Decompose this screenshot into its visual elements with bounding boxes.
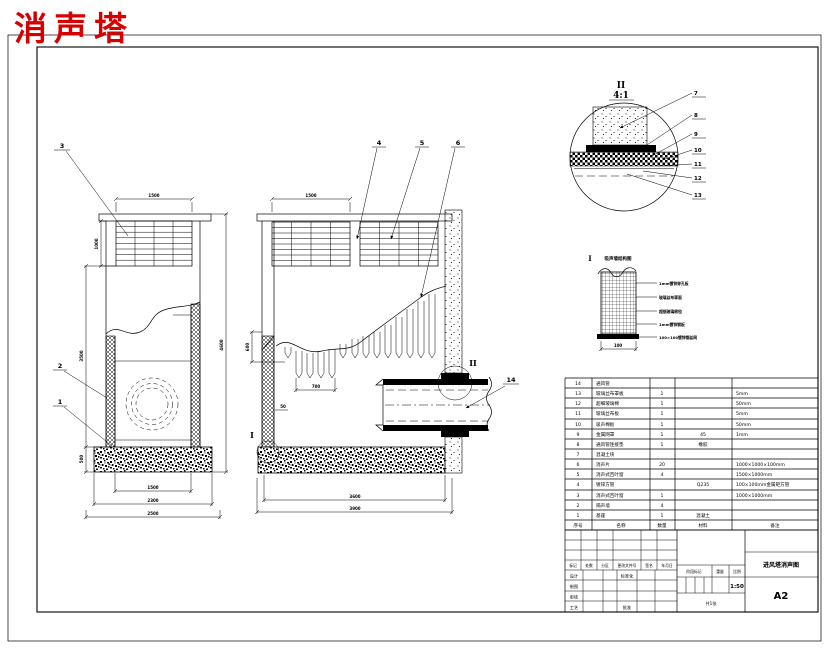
- dim-wedge-span: 700: [312, 384, 321, 389]
- bom-cell: 通风管: [596, 380, 610, 387]
- bom-cell: 6: [577, 462, 580, 468]
- tb-cell: 批准: [623, 604, 631, 611]
- callout-5: 5: [420, 139, 425, 147]
- bom-cell: 金属网罩: [596, 431, 615, 438]
- bom-table: 14通风管 13玻璃丝布罩板15mm 12超细玻璃棉150mm 11玻璃丝布板1…: [565, 378, 818, 530]
- dim-front-base-height: 500: [79, 455, 84, 464]
- drawing-name: 进风塔消声图: [763, 561, 799, 569]
- detail-i-width-dim: 100: [614, 343, 623, 348]
- dim-front-grille-height: 1000: [94, 238, 99, 249]
- packing-band: [570, 152, 678, 166]
- tb-cell: 年月日: [661, 563, 673, 568]
- bom-cell: 玻璃丝布罩板: [596, 390, 624, 397]
- detail-ii: II 4:1 7 8 9 10 11 12 13: [570, 81, 706, 211]
- bom-cell: 1: [661, 493, 664, 499]
- bom-cell: 超细玻璃棉: [596, 400, 619, 407]
- bom-cell: 1: [661, 391, 664, 397]
- callout-3: 3: [60, 142, 65, 150]
- detail-marker-i: I: [250, 430, 254, 440]
- tb-cell: 分区: [601, 563, 609, 568]
- bom-cell: 4: [661, 472, 664, 478]
- front-cap-plate: [99, 214, 211, 221]
- bom-cell: 1: [661, 422, 664, 428]
- bom-cell: 3: [577, 493, 580, 499]
- right-wall-lower: [445, 437, 462, 473]
- cad-drawing-canvas: 消声塔 1500 1000: [0, 0, 830, 654]
- front-grille: [116, 221, 192, 266]
- detail-ii-scale: 4:1: [613, 91, 629, 101]
- tb-cell: 工艺: [570, 605, 578, 610]
- bom-cell: 混凝土: [696, 512, 710, 519]
- bom-cell: 隔声墙: [596, 502, 610, 509]
- bom-cell: 8: [577, 442, 580, 448]
- callout-4: 4: [377, 139, 382, 147]
- detail-callout-13: 13: [694, 193, 702, 199]
- bom-cell: 9: [577, 432, 580, 438]
- dim-panel-width: 1500: [305, 193, 316, 198]
- front-view: 1500 1000 3500 500 4600 1500 2300 2500 3…: [53, 142, 228, 519]
- wall-hatch-left: [106, 336, 115, 447]
- tb-cell: 阶段标记: [686, 569, 701, 574]
- bom-cell: 橡胶: [698, 441, 708, 448]
- detail-callout-8: 8: [694, 113, 698, 119]
- bom-cell: 14: [575, 381, 581, 387]
- detail-i-title: 吸声墙结构图: [605, 255, 632, 262]
- bom-cell: 45: [700, 432, 706, 438]
- bom-cell: 2: [577, 503, 580, 509]
- bom-cell: 通风管连接垫: [596, 441, 624, 448]
- layer-label-2: 玻璃丝布罩面: [659, 295, 682, 300]
- detail-i: I 吸声墙结构图 100 1mm镀锌穿孔板 玻璃丝布罩面 超细玻璃棉毡 1mm镀…: [588, 254, 697, 351]
- bom-cell: 1: [577, 513, 580, 519]
- mesh-panel: [601, 272, 636, 334]
- detail-callout-12: 12: [694, 176, 702, 182]
- right-wall-upper: [445, 210, 462, 373]
- bom-rows: 14通风管 13玻璃丝布罩板15mm 12超细玻璃棉150mm 11玻璃丝布板1…: [575, 380, 790, 519]
- bom-cell: 镀锌方管: [596, 481, 615, 488]
- bom-header: 序号 名称 数量 材料 备注: [573, 522, 780, 529]
- detail-marker-ii: II: [469, 358, 477, 368]
- callout-6: 6: [456, 139, 461, 147]
- bom-cell: 1: [661, 411, 664, 417]
- bom-cell: 13: [575, 391, 581, 397]
- bom-cell: 4: [661, 503, 664, 509]
- duct-opening: [126, 378, 178, 430]
- tb-cell: 处数: [585, 563, 593, 568]
- paper-size: A2: [774, 591, 789, 602]
- bom-header-cell: 备注: [770, 522, 780, 529]
- dim-front-height-right: 4600: [219, 339, 224, 350]
- callout-1: 1: [58, 398, 63, 406]
- bom-header-cell: 序号: [573, 522, 583, 529]
- sheet-note: 共1张: [705, 600, 717, 607]
- section-wall-hatch: [262, 336, 274, 447]
- bom-cell: 50mm: [736, 401, 751, 407]
- bom-cell: 1000×1000mm: [736, 493, 773, 499]
- bom-cell: 消声式百叶窗: [596, 471, 624, 478]
- bom-cell: 1500×1000mm: [736, 472, 773, 478]
- concrete-block: [593, 107, 647, 145]
- dim-front-width-outer: 2500: [147, 511, 158, 516]
- louvre-panel-2: [360, 222, 438, 266]
- bom-cell: 基座: [596, 512, 606, 519]
- tb-cell: 标准化: [621, 573, 634, 580]
- bom-cell: 1: [661, 432, 664, 438]
- base-strip: [597, 334, 639, 339]
- detail-callout-10: 10: [694, 148, 702, 154]
- front-foundation: [94, 447, 212, 472]
- layer-label-3: 超细玻璃棉毡: [658, 309, 682, 314]
- bom-cell: 混凝土块: [596, 451, 615, 458]
- bom-cell: 4: [577, 482, 580, 488]
- role-labels: 设计 制图 审核 工艺 标准化 批准: [570, 573, 634, 612]
- callout-14: 14: [506, 376, 516, 384]
- layer-label-5: 100×100镀锌钢丝网: [659, 335, 697, 340]
- dim-front-grille-width: 1500: [148, 193, 159, 198]
- bom-cell: 消声式百叶窗: [596, 492, 624, 499]
- detail-i-label: I: [588, 254, 591, 263]
- bom-cell: 10: [575, 422, 581, 428]
- dim-front-height-left: 3500: [79, 350, 84, 361]
- bom-header-cell: 数量: [657, 522, 667, 529]
- inlet-duct: [376, 373, 492, 437]
- detail-ii-label: II: [617, 81, 625, 91]
- acoustic-wedges: [285, 294, 435, 378]
- layer-label-4: 1mm镀锌钢板: [659, 322, 685, 327]
- bom-cell: 消声片: [596, 461, 610, 468]
- tb-cell: 审核: [570, 594, 579, 601]
- section-view: 700 600 50 I II 3600 3900: [245, 139, 519, 514]
- bom-header-cell: 材料: [698, 522, 708, 529]
- dim-wall-thickness: 50: [280, 404, 286, 409]
- tb-cell: 更改文件号: [618, 563, 637, 568]
- bom-cell: 20: [659, 462, 665, 468]
- dim-front-width-inner: 1500: [147, 485, 158, 490]
- bom-cell: 5: [577, 472, 580, 478]
- section-foundation: [258, 447, 445, 473]
- drawing-scale: 1:50: [730, 584, 744, 590]
- bom-cell: 1mm: [736, 432, 748, 438]
- bom-cell: 1000×1000×100mm: [736, 462, 785, 468]
- bom-cell: 1: [661, 513, 664, 519]
- tb-cell: 设计: [570, 573, 578, 580]
- dim-front-width-mid: 2300: [147, 498, 158, 503]
- bom-cell: 5mm: [736, 391, 748, 397]
- tb-cell: 重量: [716, 569, 724, 574]
- tb-cell: 签名: [645, 563, 653, 568]
- tb-cell: 标记: [569, 563, 577, 568]
- bom-cell: 玻璃丝布板: [596, 410, 619, 417]
- wall-hatch-right: [191, 304, 200, 447]
- bom-cell: 5mm: [736, 411, 748, 417]
- section-break-line: [276, 286, 446, 352]
- bom-cell: 1: [661, 442, 664, 448]
- tb-cell: 比例: [733, 569, 741, 574]
- detail-callout-7: 7: [694, 91, 698, 97]
- title-block: 标记 处数 分区 更改文件号 签名 年月日 设计 制图 审核 工艺 标准化 批准…: [565, 530, 818, 612]
- section-cap-plate: [257, 214, 452, 221]
- revision-headers: 标记 处数 分区 更改文件号 签名 年月日: [569, 563, 673, 568]
- bom-cell: 12: [575, 401, 581, 407]
- callout-2: 2: [58, 362, 63, 370]
- bom-cell: 7: [577, 452, 580, 458]
- detail-callout-11: 11: [694, 162, 702, 168]
- louvre-panel-1: [272, 222, 350, 266]
- drawing-frame: [8, 35, 821, 641]
- layer-label-1: 1mm镀锌穿孔板: [659, 281, 689, 286]
- bom-cell: 吸声棉板: [596, 421, 615, 428]
- bom-header-cell: 名称: [616, 522, 626, 529]
- detail-callout-9: 9: [694, 132, 698, 138]
- bom-cell: 100×100mm金属矩方管: [736, 481, 790, 488]
- dim-wedge-height: 600: [245, 343, 250, 352]
- tb-cell: 制图: [570, 583, 578, 590]
- bom-cell: 11: [575, 411, 581, 417]
- page-title: 消声塔: [14, 9, 134, 48]
- dim-section-width-outer: 3900: [349, 506, 360, 511]
- bom-cell: Q235: [697, 482, 709, 488]
- break-line: [106, 302, 200, 334]
- bom-cell: 1: [661, 401, 664, 407]
- bom-cell: 50mm: [736, 422, 751, 428]
- dim-section-width-inner: 3600: [349, 494, 360, 499]
